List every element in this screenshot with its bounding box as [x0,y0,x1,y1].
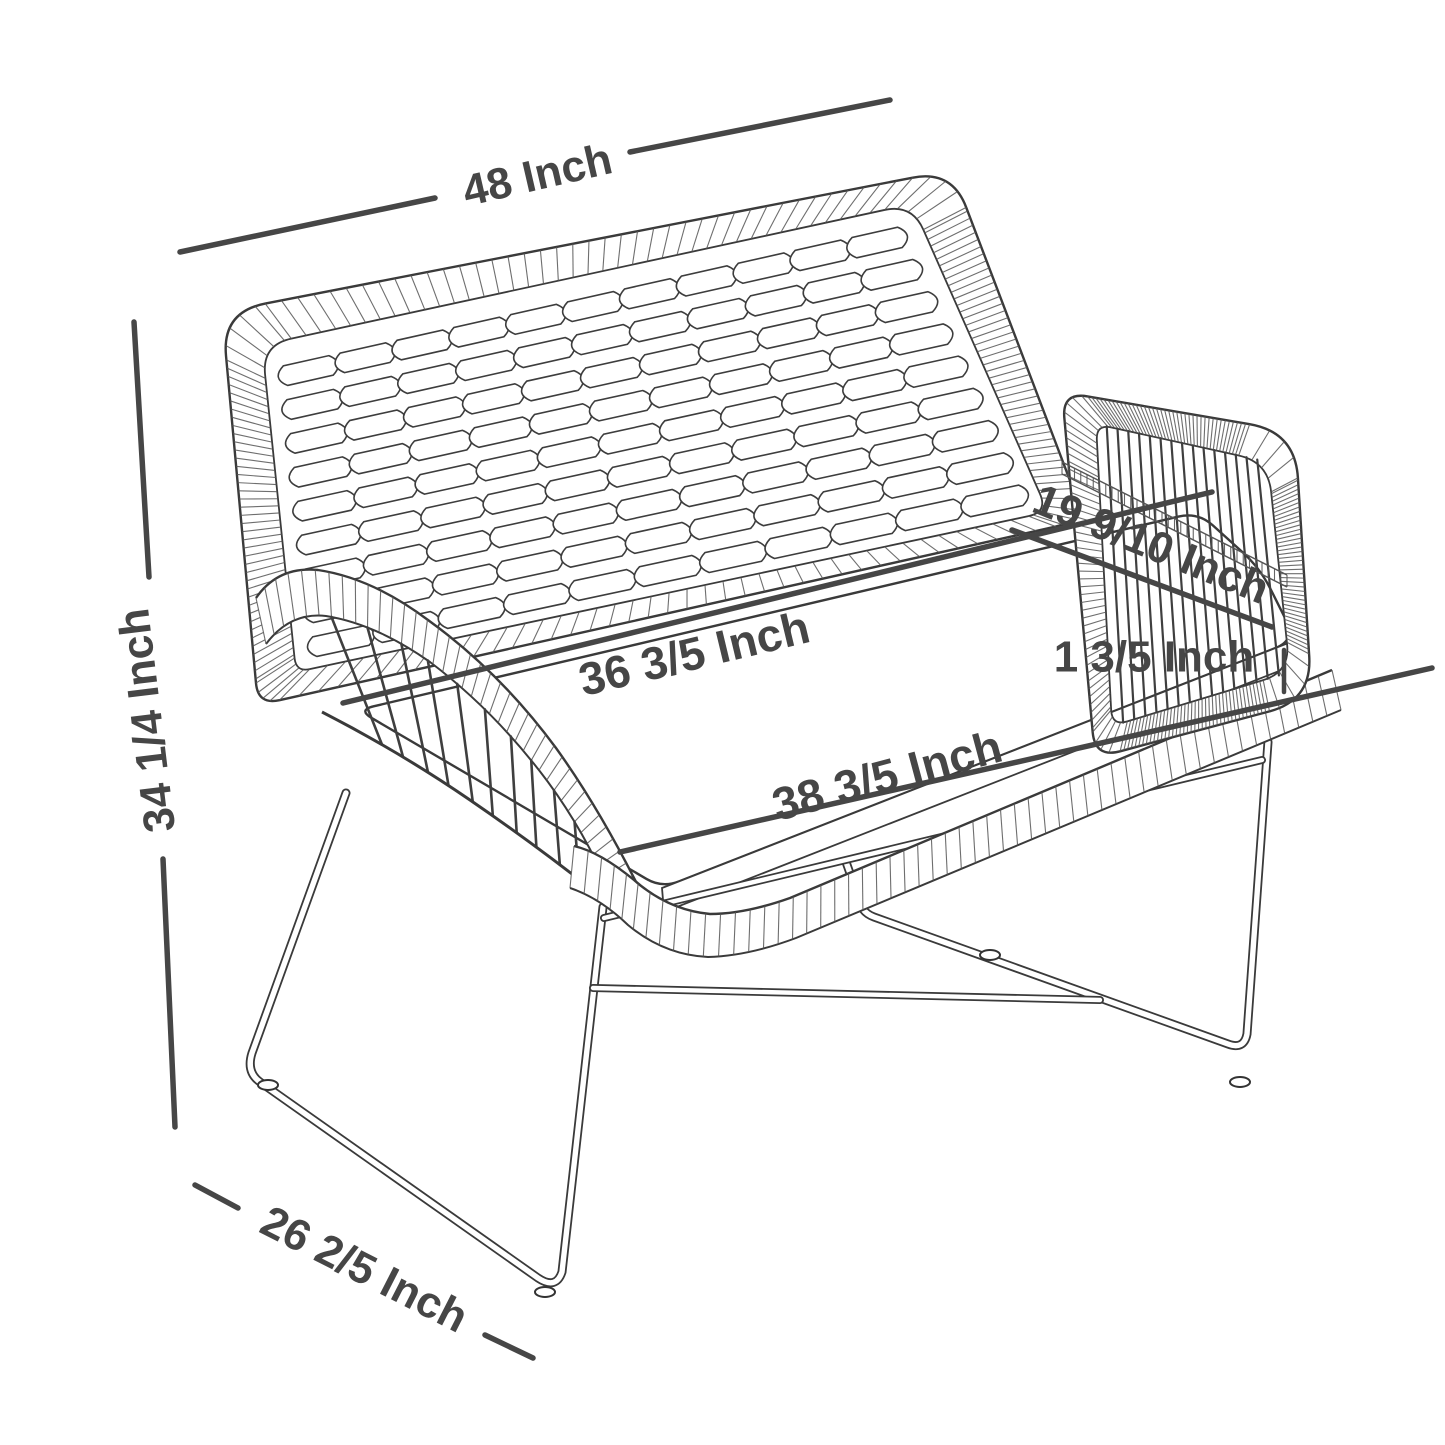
bench-diagram-svg: 48 Inch 34 1/4 Inch 26 2/5 Inch 36 3/5 I… [0,0,1445,1445]
dim-line-overall-height-bottom [163,859,175,1127]
dim-label-cushion-thickness: 1 3/5 Inch [1054,633,1255,682]
dim-line-overall-depth-left [195,1185,238,1208]
dim-line-overall-height-top [134,322,149,577]
dimension-diagram: 48 Inch 34 1/4 Inch 26 2/5 Inch 36 3/5 I… [0,0,1445,1445]
dim-label-overall-depth: 26 2/5 Inch [253,1197,476,1343]
dim-label-overall-height: 34 1/4 Inch [109,606,185,835]
dim-line-overall-width-right [630,100,890,152]
dim-line-overall-width-left [180,198,435,252]
dim-label-overall-width: 48 Inch [458,134,617,216]
dim-line-overall-depth-right [485,1335,533,1358]
bench-sketch [226,176,1341,1297]
